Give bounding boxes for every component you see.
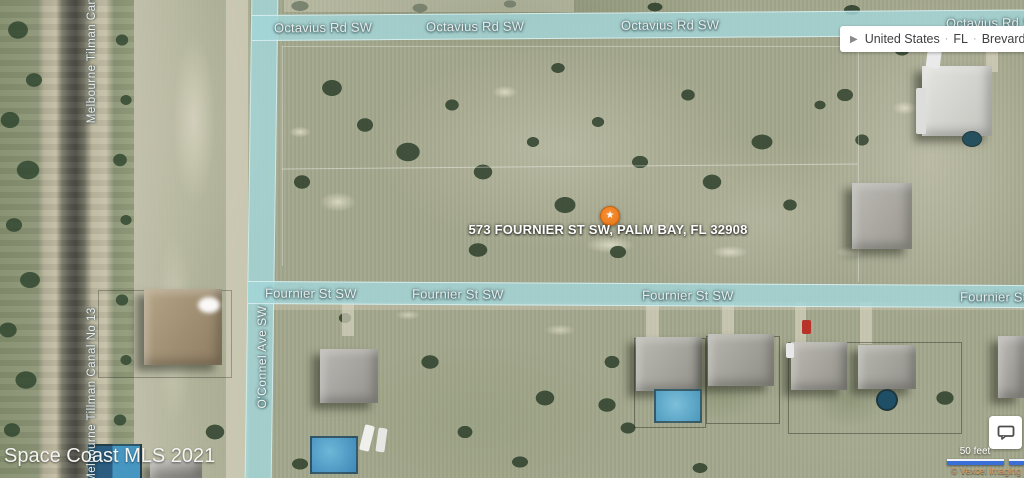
house-roof — [852, 183, 912, 249]
road-label: Fournier St SW — [642, 287, 734, 302]
house-roof — [998, 336, 1024, 398]
house-roof — [636, 337, 702, 391]
breadcrumb-separator: · — [945, 33, 949, 45]
driveway — [646, 302, 659, 338]
map-canvas[interactable]: Octavius Rd SW Octavius Rd SW Octavius R… — [0, 0, 1024, 478]
mls-watermark: Space Coast MLS 2021 — [4, 445, 215, 468]
road-label: Fournier St S — [960, 289, 1024, 304]
breadcrumb-item-state[interactable]: FL — [953, 32, 968, 46]
road-shoulder — [284, 0, 574, 12]
breadcrumb-separator: · — [973, 33, 977, 45]
road-label: Octavius Rd SW — [274, 20, 372, 36]
road-overlay-fournier: Fournier St SW Fournier St SW Fournier S… — [248, 281, 1024, 308]
driveway — [722, 302, 734, 334]
road-label: Octavius Rd SW — [621, 17, 719, 33]
imagery-attribution: © Vexcel Imaging — [951, 466, 1021, 476]
road-label: Fournier St SW — [412, 286, 504, 301]
scale-bar — [947, 459, 1004, 465]
driveway — [342, 302, 354, 336]
house-roof — [791, 342, 847, 390]
round-pool — [962, 131, 982, 147]
chevron-right-icon[interactable]: ▶ — [850, 34, 858, 45]
speech-bubble-icon — [997, 425, 1015, 440]
house-roof — [320, 349, 378, 403]
boat — [916, 88, 926, 134]
property-address-label: 573 FOURNIER ST SW, PALM BAY, FL 32908 — [469, 222, 748, 237]
road-label-oconnel: O'Connel Ave SW — [255, 297, 269, 417]
breadcrumb-item-country[interactable]: United States — [865, 32, 940, 46]
swimming-pool — [310, 436, 358, 474]
breadcrumb-item-county[interactable]: Brevard Co. — [982, 32, 1024, 46]
house-roof — [708, 334, 774, 386]
driveway — [860, 302, 872, 344]
house-roof — [922, 66, 992, 136]
scale-bar — [1009, 459, 1024, 465]
road-label: Octavius Rd SW — [426, 19, 524, 35]
scale-label: 50 feet — [940, 446, 1010, 457]
house-roof — [144, 289, 222, 365]
canal-label: Melbourne Tilman Cana — [86, 0, 98, 132]
red-car — [802, 320, 811, 334]
breadcrumb: ▶ United States · FL · Brevard Co. · Pal… — [840, 26, 1024, 52]
round-pool — [876, 389, 898, 411]
feedback-button[interactable] — [989, 416, 1022, 449]
house-roof — [858, 345, 916, 389]
road-label: Fournier St SW — [265, 285, 357, 300]
swimming-pool — [654, 389, 702, 423]
roof-glint — [198, 297, 220, 313]
white-car — [786, 343, 794, 358]
